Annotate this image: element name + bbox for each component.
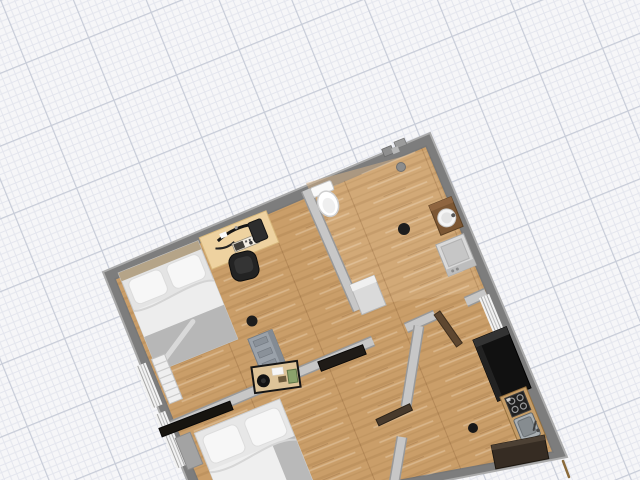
plan-canvas[interactable] xyxy=(0,0,640,480)
ceiling-light-kitchen[interactable] xyxy=(468,423,478,433)
entrance-door-knob[interactable] xyxy=(397,163,406,172)
plant xyxy=(287,369,298,383)
paper xyxy=(272,367,284,375)
ceiling-light-bathroom[interactable] xyxy=(398,223,410,235)
app-window xyxy=(0,0,640,480)
typewriter-desk[interactable] xyxy=(251,361,300,393)
ceiling-light-bedroom1[interactable] xyxy=(247,316,258,327)
